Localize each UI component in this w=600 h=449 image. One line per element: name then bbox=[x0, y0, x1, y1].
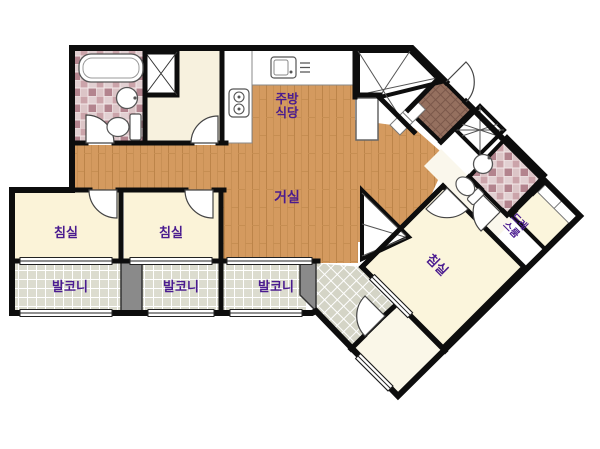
balcony2-outer-window bbox=[148, 310, 214, 317]
sink-icon bbox=[117, 88, 138, 109]
bedroom2-window bbox=[130, 258, 212, 265]
living-room-label: 거실 bbox=[274, 189, 300, 205]
living-balcony-window bbox=[227, 258, 312, 265]
bedroom2-label: 침실 bbox=[159, 225, 183, 240]
balcony3-label: 발코니 bbox=[258, 279, 294, 294]
balcony3-outer-window bbox=[230, 310, 302, 317]
shaft-box bbox=[145, 52, 177, 95]
bedroom1-window bbox=[20, 258, 112, 265]
sink2-icon bbox=[474, 155, 493, 174]
kitchen-label-line1: 주방 bbox=[275, 91, 299, 106]
stove-icon bbox=[229, 89, 249, 117]
balcony2-label: 발코니 bbox=[163, 279, 199, 294]
bedroom1-label: 침실 bbox=[54, 225, 78, 240]
balcony1-label: 발코니 bbox=[52, 279, 88, 294]
corridor-floor bbox=[75, 145, 222, 190]
bathtub bbox=[79, 54, 143, 82]
floor-plan-page: 주방 식당 거실 침실 침실 발코니 발코니 발코니 침실 드레 스룸 bbox=[0, 0, 600, 449]
floor-plan: 주방 식당 거실 침실 침실 발코니 발코니 발코니 침실 드레 스룸 bbox=[0, 0, 600, 449]
balcony-divider bbox=[121, 261, 142, 313]
refrigerator-niche bbox=[356, 98, 378, 140]
balcony1-outer-window bbox=[20, 310, 112, 317]
kitchen-label-line2: 식당 bbox=[275, 105, 299, 120]
kitchen-floor bbox=[250, 83, 355, 145]
